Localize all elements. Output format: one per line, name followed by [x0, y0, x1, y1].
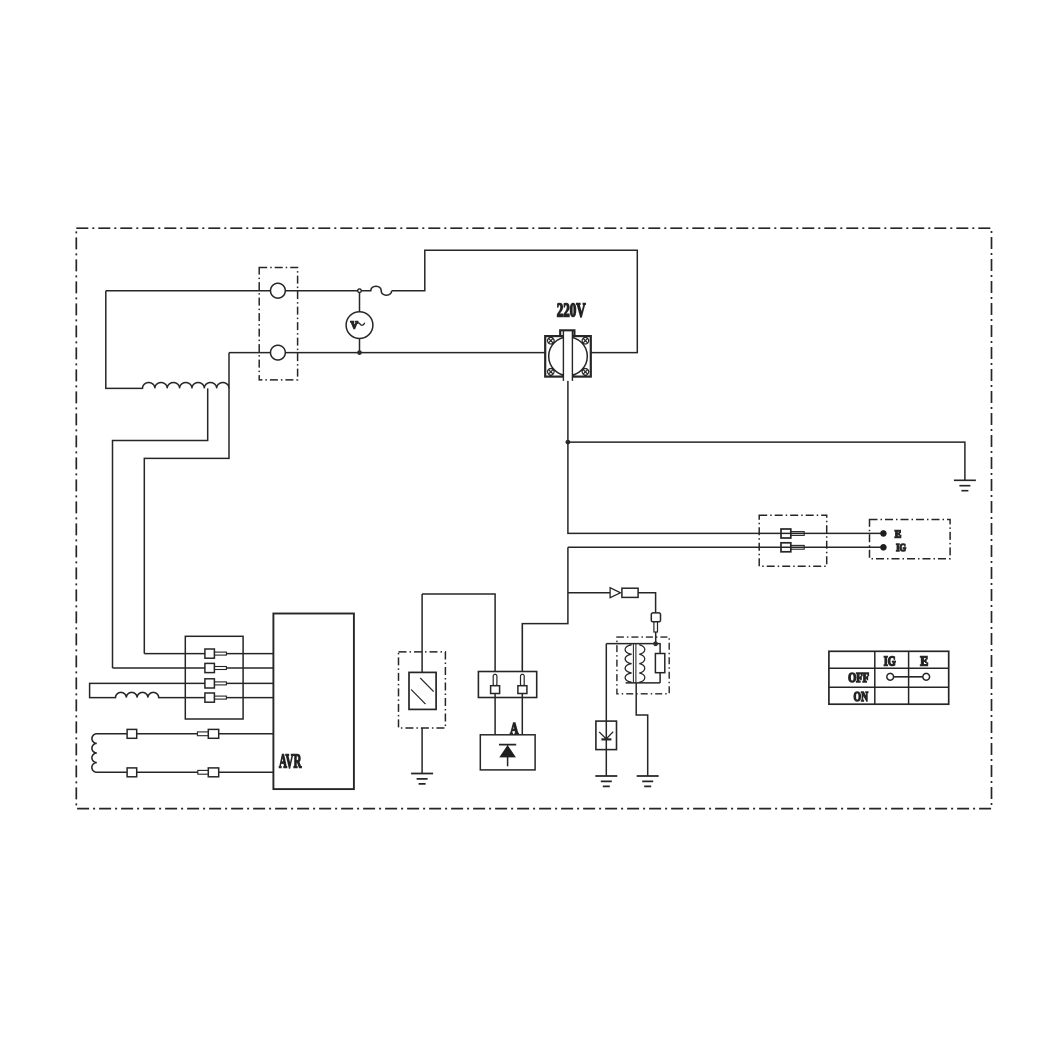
svg-text:V: V: [351, 321, 359, 332]
svg-text:ON: ON: [854, 689, 869, 704]
svg-text:IG: IG: [884, 654, 896, 669]
svg-text:OFF: OFF: [848, 670, 869, 685]
svg-text:E: E: [895, 528, 902, 540]
svg-text:IG: IG: [896, 542, 906, 554]
svg-text:AVR: AVR: [279, 751, 302, 773]
svg-text:220V: 220V: [557, 299, 586, 321]
svg-text:E: E: [920, 654, 928, 669]
